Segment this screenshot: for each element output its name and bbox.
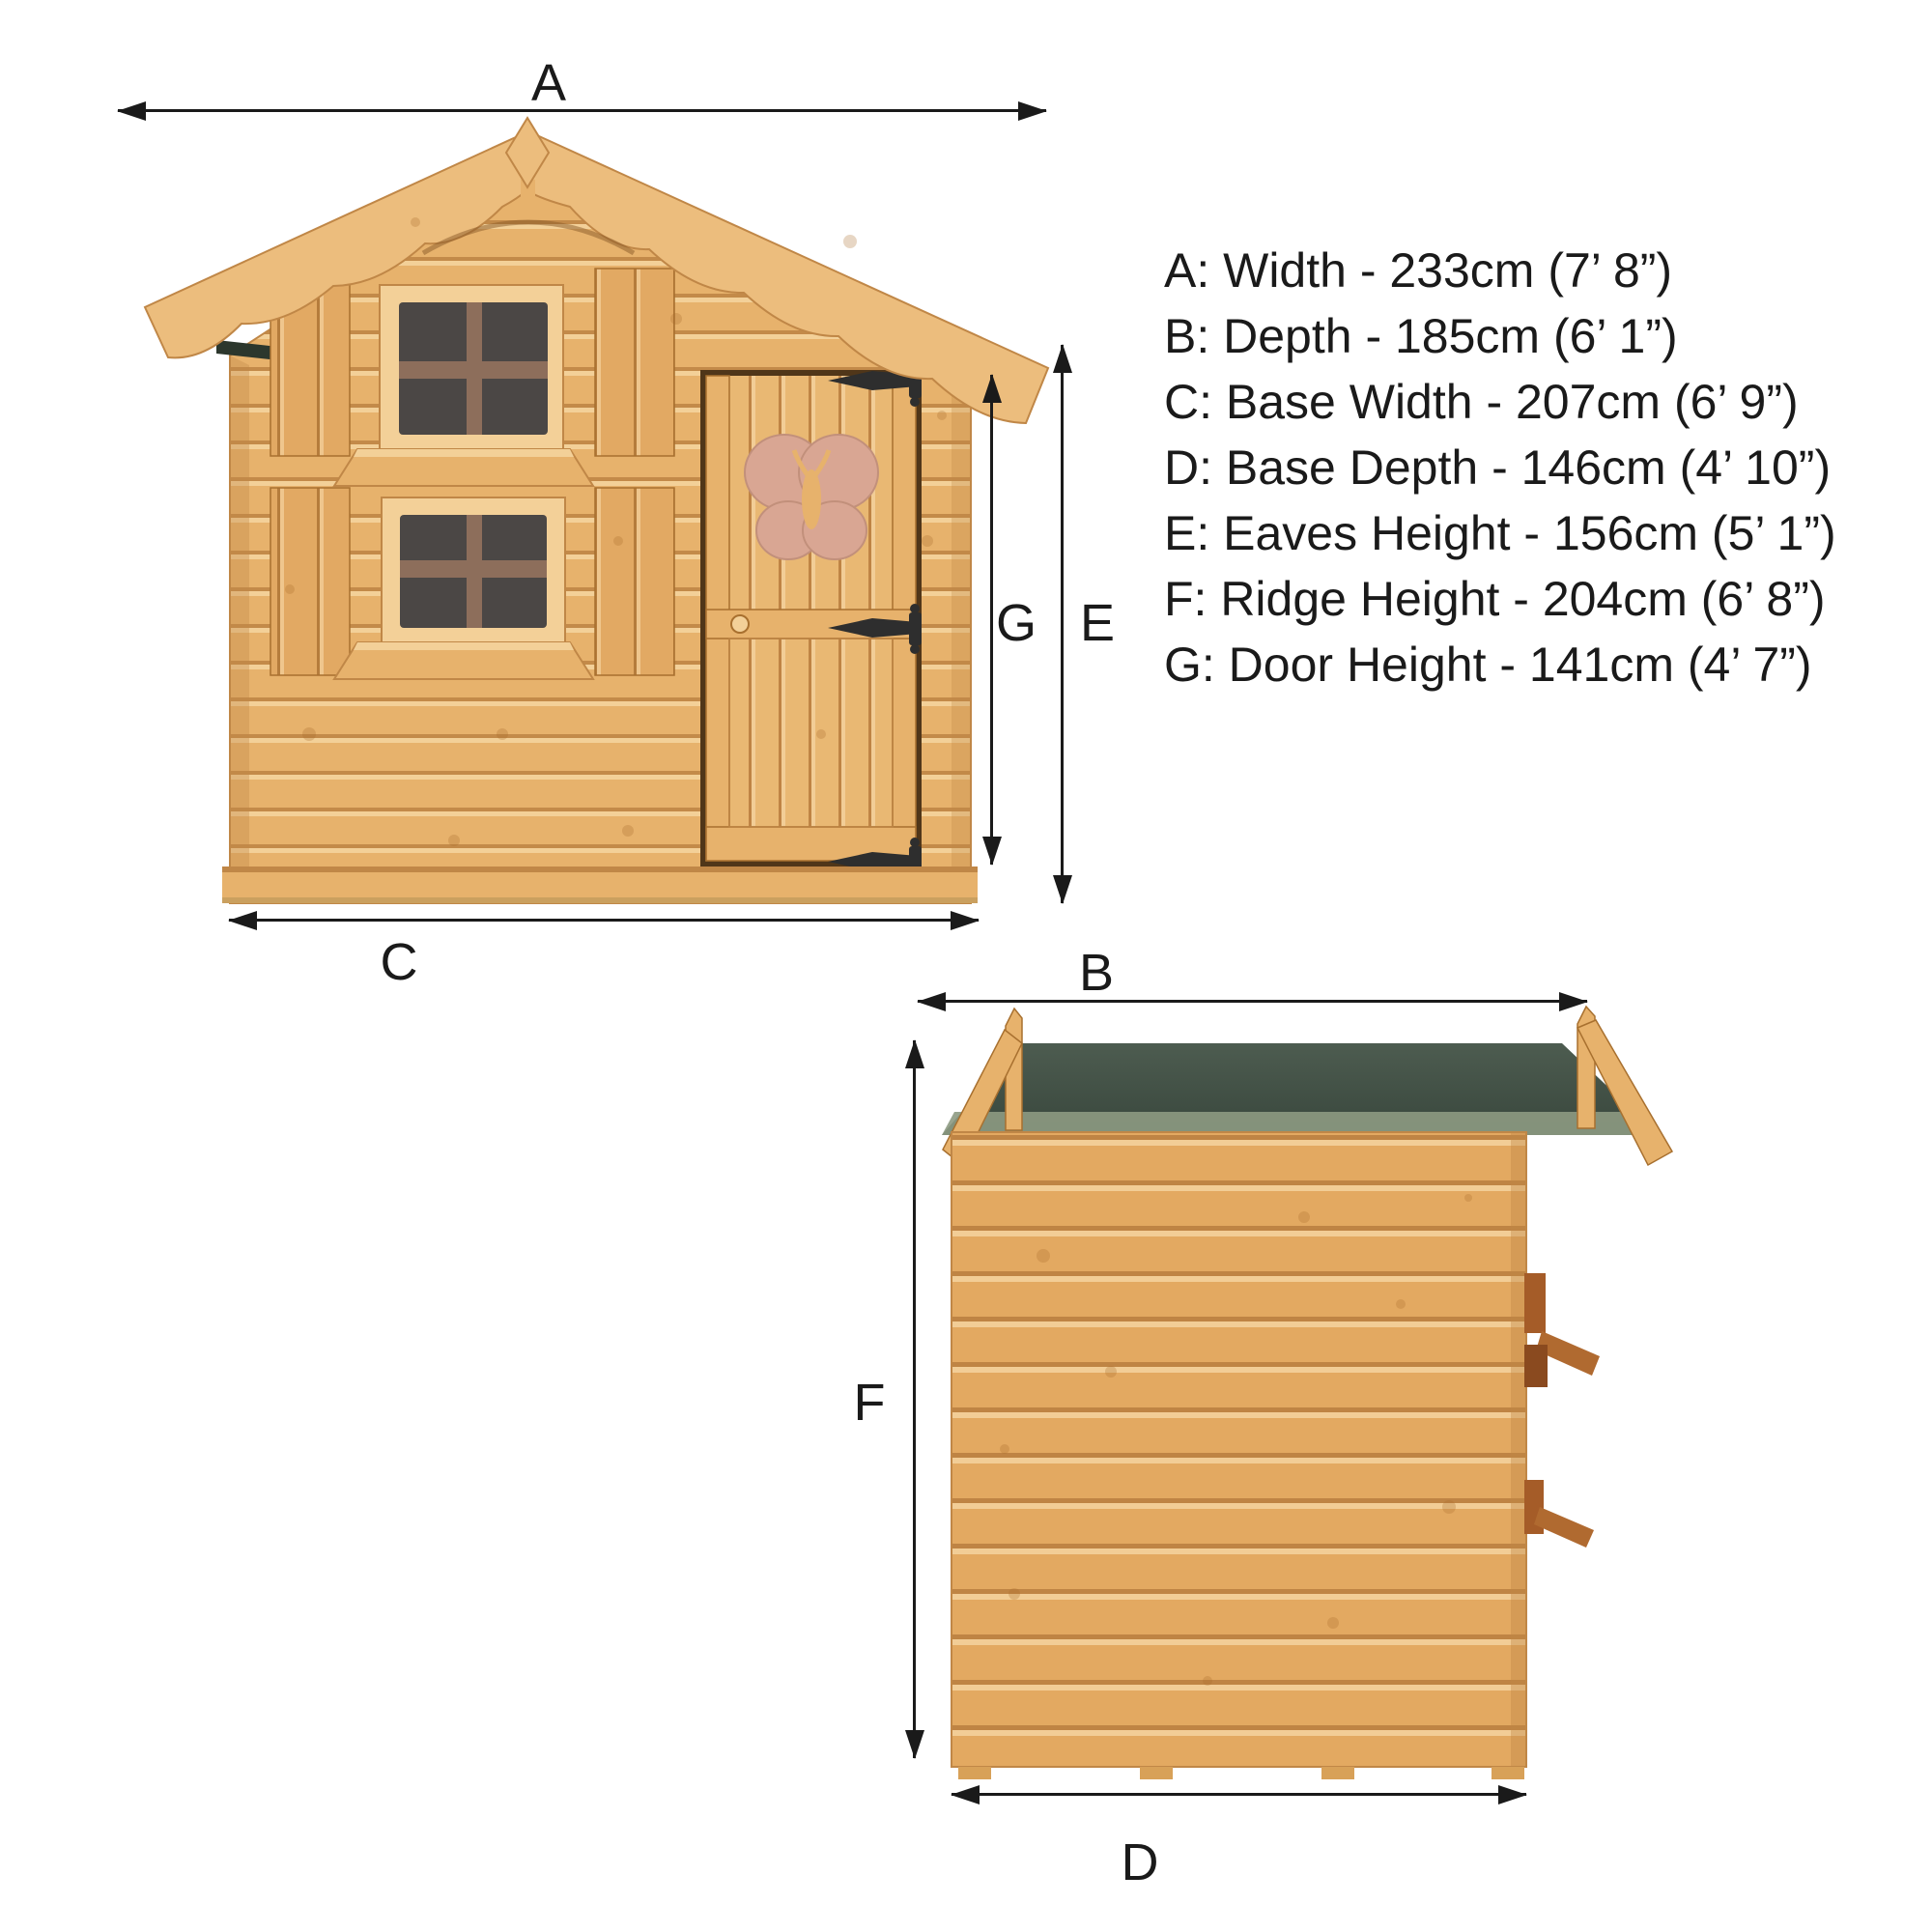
edge-hinge-bracket-lower — [1524, 1480, 1594, 1548]
dim-arrow-base-depth-d — [952, 1793, 1526, 1796]
flower-box-lower — [334, 642, 593, 679]
dim-arrow-door-height-g — [990, 375, 993, 865]
dim-label-g: G — [996, 597, 1037, 649]
front-elevation — [145, 118, 1048, 903]
side-wall — [952, 1132, 1526, 1767]
dim-arrow-eaves-height-e — [1061, 345, 1064, 903]
shutter-upper-right — [595, 269, 674, 456]
dimensions-legend: A: Width - 233cm (7’ 8”) B: Depth - 185c… — [1164, 238, 1836, 697]
dim-label-e: E — [1080, 597, 1115, 649]
legend-line-base-width: C: Base Width - 207cm (6’ 9”) — [1164, 369, 1836, 435]
shutter-lower-right — [595, 488, 674, 675]
legend-line-width: A: Width - 233cm (7’ 8”) — [1164, 238, 1836, 303]
window-lower — [382, 497, 565, 642]
dim-label-f: F — [854, 1377, 886, 1429]
legend-line-ridge-height: F: Ridge Height - 204cm (6’ 8”) — [1164, 566, 1836, 632]
dim-label-d: D — [1122, 1836, 1159, 1889]
front-base — [222, 867, 978, 903]
floor-bearers — [958, 1767, 1524, 1779]
front-corner-trim-right — [952, 359, 971, 903]
dim-arrow-base-width-c — [229, 919, 979, 922]
side-elevation — [942, 1007, 1672, 1779]
legend-line-door-height: G: Door Height - 141cm (4’ 7”) — [1164, 632, 1836, 697]
butterfly-body — [802, 469, 821, 529]
window-upper — [380, 285, 563, 449]
dim-arrow-depth-b — [918, 1000, 1587, 1003]
legend-line-base-depth: D: Base Depth - 146cm (4’ 10”) — [1164, 435, 1836, 500]
dim-label-a: A — [531, 57, 566, 109]
front-corner-trim-left — [230, 355, 249, 903]
dim-label-c: C — [381, 936, 418, 988]
side-corner-trim — [1511, 1132, 1526, 1767]
edge-hinge-bracket-upper — [1524, 1273, 1600, 1387]
dim-arrow-ridge-height-f — [913, 1040, 916, 1758]
legend-line-depth: B: Depth - 185cm (6’ 1”) — [1164, 303, 1836, 369]
flower-box-upper — [334, 449, 593, 486]
shutter-lower-left — [270, 488, 350, 675]
dim-label-b: B — [1079, 947, 1114, 999]
legend-line-eaves-height: E: Eaves Height - 156cm (5’ 1”) — [1164, 500, 1836, 566]
playhouse-dimension-diagram: A C G E B F D A: Width - 233cm (7’ 8”) B… — [0, 0, 1932, 1932]
door-knob — [731, 615, 749, 633]
dim-arrow-width-a — [118, 109, 1046, 112]
door — [700, 356, 922, 888]
